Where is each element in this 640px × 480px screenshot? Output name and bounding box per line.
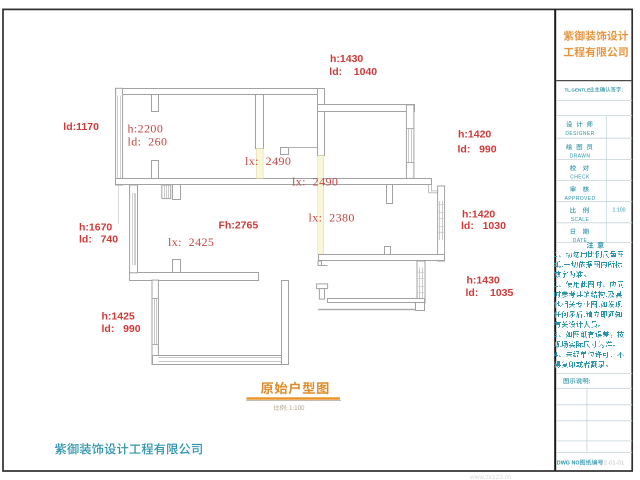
svg-text:ld: 740: ld: 740: [79, 234, 118, 246]
svg-text:DRAWN: DRAWN: [570, 154, 591, 160]
svg-text:h:1430: h:1430: [330, 53, 363, 65]
svg-text:CHECK: CHECK: [570, 175, 590, 181]
svg-text:lx: 2490: lx: 2490: [292, 175, 338, 189]
svg-text:h:1420: h:1420: [458, 129, 491, 141]
svg-text:ld:1170: ld:1170: [63, 121, 99, 133]
svg-text:h:1425: h:1425: [102, 310, 135, 322]
svg-text:Fh:2765: Fh:2765: [219, 220, 259, 232]
svg-text:lx: 2425: lx: 2425: [168, 235, 214, 249]
svg-text:h:1420: h:1420: [462, 209, 495, 221]
svg-text:h:1670: h:1670: [79, 221, 112, 233]
svg-text:2-01-01: 2-01-01: [604, 460, 624, 466]
svg-text:TL.GENTLE: TL.GENTLE: [565, 87, 591, 92]
svg-text:ld: 990: ld: 990: [102, 323, 141, 335]
svg-text:ld: 990: ld: 990: [458, 143, 497, 155]
svg-text:www.zx123.cn: www.zx123.cn: [469, 474, 512, 480]
svg-text:h:2200: h:2200: [128, 122, 164, 136]
svg-text:DESIGNER: DESIGNER: [565, 131, 594, 137]
svg-text:ld: 260: ld: 260: [128, 135, 168, 149]
svg-text:1:100: 1:100: [613, 207, 626, 213]
svg-text:DWG NO: DWG NO: [557, 460, 580, 466]
svg-text:SCALE: SCALE: [571, 217, 590, 223]
svg-text:ld: 1035: ld: 1035: [466, 287, 514, 299]
svg-text:h:1430: h:1430: [467, 275, 500, 287]
svg-text:lx: 2490: lx: 2490: [245, 154, 291, 168]
svg-text:lx: 2380: lx: 2380: [309, 211, 355, 225]
svg-text:DATE: DATE: [573, 238, 588, 244]
svg-text:ld: 1030: ld: 1030: [461, 220, 506, 232]
svg-text:ld: 1040: ld: 1040: [329, 66, 377, 78]
svg-text:APPROVED: APPROVED: [565, 196, 596, 202]
